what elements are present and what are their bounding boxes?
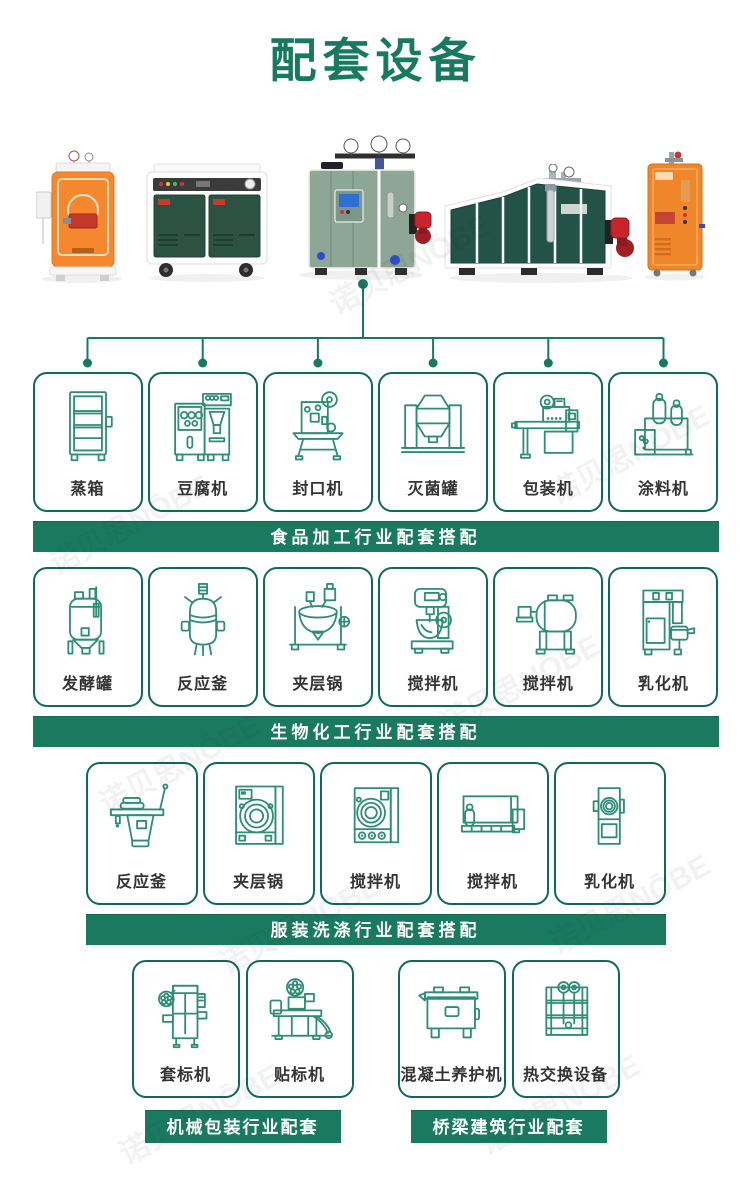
banner-machinery-packaging: 机械包装行业配套 [145, 1110, 341, 1143]
ironing-table-icon [88, 764, 196, 868]
concrete-curing-machine-icon [400, 962, 504, 1061]
equipment-card-packing-machine: 包装机 [493, 372, 603, 512]
equipment-label: 搅拌机 [408, 670, 459, 694]
equipment-card-tofu-machine: 豆腐机 [148, 372, 258, 512]
product-photos-row [0, 0, 751, 300]
equipment-row-machinery: 套标机贴标机 [132, 960, 354, 1098]
equipment-card-jacketed-kettle: 夹层锅 [263, 567, 373, 707]
equipment-card-heat-exchanger: 热交换设备 [512, 960, 620, 1098]
equipment-label: 灭菌罐 [408, 475, 459, 499]
product-photo-green-cabinet-steam-generator [144, 162, 270, 284]
equipment-label: 热交换设备 [523, 1061, 608, 1085]
banner-biochemical: 生物化工行业配套搭配 [33, 716, 719, 747]
tofu-machine-icon [150, 374, 256, 475]
connector-tree [0, 276, 751, 376]
banner-label: 桥梁建筑行业配套 [433, 1118, 585, 1137]
equipment-row-laundry: 反应釜夹层锅搅拌机搅拌机乳化机 [86, 762, 666, 905]
equipment-label: 涂料机 [638, 475, 689, 499]
jacketed-kettle-icon [265, 569, 371, 670]
product-photo-vertical-steam-generator-orange [36, 148, 128, 284]
equipment-card-dryer: 搅拌机 [320, 762, 432, 905]
equipment-card-sleeve-labeler: 套标机 [132, 960, 240, 1098]
equipment-label: 豆腐机 [177, 475, 228, 499]
equipment-card-planetary-mixer: 搅拌机 [378, 567, 488, 707]
labeling-machine-icon [248, 962, 352, 1061]
flatwork-ironer-icon [439, 764, 547, 868]
section-machinery-packaging: 套标机贴标机 机械包装行业配套 [132, 960, 354, 1143]
sterilizer-tank-icon [380, 374, 486, 475]
dryer-icon [322, 764, 430, 868]
banner-bridge-construction: 桥梁建筑行业配套 [411, 1110, 607, 1143]
equipment-row-biochemical: 发酵罐反应釜夹层锅搅拌机搅拌机乳化机 [33, 567, 719, 707]
sections-flow: 蒸箱豆腐机封口机灭菌罐包装机涂料机 食品加工行业配套搭配 发酵罐反应釜夹层锅搅拌… [0, 372, 751, 1143]
equipment-card-labeling-machine: 贴标机 [246, 960, 354, 1098]
banner-food-processing: 食品加工行业配套搭配 [33, 521, 719, 552]
banner-label: 服装洗涤行业配套搭配 [271, 921, 481, 940]
banner-label: 机械包装行业配套 [167, 1118, 319, 1137]
equipment-card-sealing-machine: 封口机 [263, 372, 373, 512]
equipment-card-fermentation-tank: 发酵罐 [33, 567, 143, 707]
equipment-label: 夹层锅 [233, 868, 284, 892]
fermentation-tank-icon [35, 569, 141, 670]
reaction-kettle-icon [150, 569, 256, 670]
sealing-machine-icon [265, 374, 371, 475]
product-photo-cube-steam-boiler [291, 134, 437, 282]
equipment-label: 反应釜 [177, 670, 228, 694]
equipment-label: 搅拌机 [467, 868, 518, 892]
equipment-label: 发酵罐 [62, 670, 113, 694]
equipment-label: 乳化机 [584, 868, 635, 892]
equipment-card-reaction-kettle: 反应釜 [148, 567, 258, 707]
equipment-row-food: 蒸箱豆腐机封口机灭菌罐包装机涂料机 [33, 372, 719, 512]
poster: 诺贝思NŌBE 诺贝思NŌBE 诺贝思NŌBE 诺贝思NŌBE 诺贝思NŌBE … [0, 0, 751, 1187]
equipment-label: 包装机 [523, 475, 574, 499]
equipment-card-drum-mixer: 搅拌机 [493, 567, 603, 707]
drum-mixer-icon [495, 569, 601, 670]
banner-label: 食品加工行业配套搭配 [271, 528, 481, 547]
equipment-card-flatwork-ironer: 搅拌机 [437, 762, 549, 905]
narrow-dryer-icon [556, 764, 664, 868]
equipment-label: 蒸箱 [70, 475, 104, 499]
equipment-label: 封口机 [292, 475, 343, 499]
equipment-card-sterilizer-tank: 灭菌罐 [378, 372, 488, 512]
equipment-label: 反应釜 [116, 868, 167, 892]
product-photo-horizontal-steam-boiler [441, 164, 641, 284]
heat-exchanger-icon [514, 962, 618, 1061]
equipment-label: 夹层锅 [292, 670, 343, 694]
planetary-mixer-icon [380, 569, 486, 670]
equipment-label: 乳化机 [638, 670, 689, 694]
equipment-card-coating-machine: 涂料机 [608, 372, 718, 512]
equipment-label: 贴标机 [274, 1061, 325, 1085]
equipment-card-washer: 夹层锅 [203, 762, 315, 905]
section-food-processing: 蒸箱豆腐机封口机灭菌罐包装机涂料机 食品加工行业配套搭配 [33, 372, 719, 552]
packing-machine-icon [495, 374, 601, 475]
section-laundry: 反应釜夹层锅搅拌机搅拌机乳化机 服装洗涤行业配套搭配 [86, 762, 666, 945]
section-bridge-construction: 混凝土养护机热交换设备 桥梁建筑行业配套 [398, 960, 620, 1143]
coating-machine-icon [610, 374, 716, 475]
washer-icon [205, 764, 313, 868]
bottom-sections-row: 套标机贴标机 机械包装行业配套 混凝土养护机热交换设备 桥梁建筑行业配套 [0, 960, 751, 1143]
sleeve-labeler-icon [134, 962, 238, 1061]
equipment-card-ironing-table: 反应釜 [86, 762, 198, 905]
equipment-card-concrete-curing-machine: 混凝土养护机 [398, 960, 506, 1098]
banner-label: 生物化工行业配套搭配 [271, 723, 481, 742]
equipment-label: 搅拌机 [523, 670, 574, 694]
equipment-label: 搅拌机 [350, 868, 401, 892]
equipment-label: 混凝土养护机 [400, 1061, 502, 1085]
emulsifier-icon [610, 569, 716, 670]
equipment-card-steam-cabinet: 蒸箱 [33, 372, 143, 512]
product-photo-small-orange-steam-generator [641, 150, 709, 282]
equipment-card-narrow-dryer: 乳化机 [554, 762, 666, 905]
steam-cabinet-icon [35, 374, 141, 475]
equipment-label: 套标机 [160, 1061, 211, 1085]
equipment-card-emulsifier: 乳化机 [608, 567, 718, 707]
equipment-row-bridge: 混凝土养护机热交换设备 [398, 960, 620, 1098]
section-biochemical: 发酵罐反应釜夹层锅搅拌机搅拌机乳化机 生物化工行业配套搭配 [33, 567, 719, 747]
banner-laundry: 服装洗涤行业配套搭配 [86, 914, 666, 945]
